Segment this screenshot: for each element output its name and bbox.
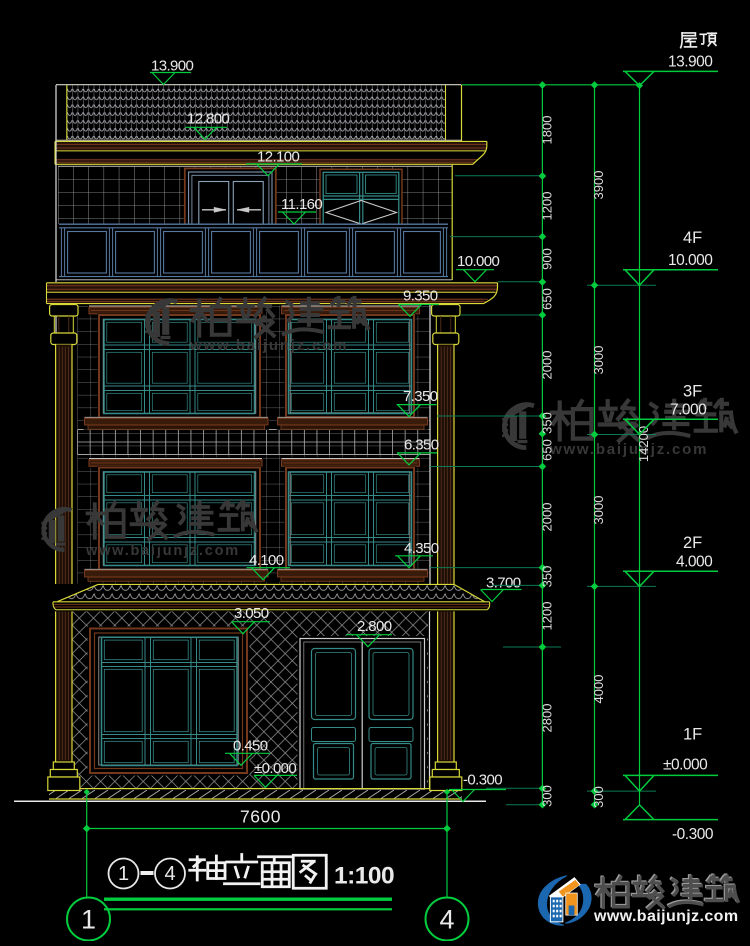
- svg-text:2000: 2000: [540, 351, 555, 380]
- svg-text:300: 300: [540, 785, 555, 807]
- svg-text:3000: 3000: [591, 496, 606, 525]
- svg-text:2.800: 2.800: [357, 618, 392, 635]
- svg-text:900: 900: [540, 248, 555, 270]
- svg-text:www.baijunjz.com: www.baijunjz.com: [593, 908, 739, 925]
- svg-text:300: 300: [591, 786, 606, 808]
- svg-text:±0.000: ±0.000: [254, 760, 296, 777]
- svg-text:4: 4: [439, 905, 454, 935]
- svg-text:12.800: 12.800: [187, 111, 230, 128]
- svg-text:350: 350: [540, 412, 555, 434]
- svg-text:1200: 1200: [540, 192, 555, 221]
- svg-text:6.350: 6.350: [404, 437, 439, 454]
- svg-text:4.000: 4.000: [676, 554, 713, 571]
- svg-text:1: 1: [81, 905, 96, 935]
- svg-text:-0.300: -0.300: [672, 826, 714, 843]
- svg-text:2F: 2F: [683, 534, 702, 552]
- svg-text:3900: 3900: [591, 171, 606, 200]
- svg-text:9.350: 9.350: [403, 288, 438, 305]
- svg-text:4.350: 4.350: [404, 540, 439, 557]
- svg-text:7.350: 7.350: [403, 388, 438, 405]
- svg-text:13.900: 13.900: [668, 54, 713, 71]
- svg-text:www.baijunjz.com: www.baijunjz.com: [85, 543, 240, 559]
- svg-text:650: 650: [540, 439, 555, 461]
- svg-text:4: 4: [164, 863, 175, 885]
- svg-text:12.100: 12.100: [257, 149, 300, 166]
- svg-text:www.baijunjz.com: www.baijunjz.com: [189, 337, 348, 354]
- svg-text:±0.000: ±0.000: [663, 757, 708, 774]
- svg-text:350: 350: [540, 566, 555, 588]
- svg-text:650: 650: [540, 288, 555, 310]
- svg-text:4000: 4000: [591, 675, 606, 704]
- svg-text:-0.300: -0.300: [463, 772, 502, 789]
- svg-text:2000: 2000: [540, 503, 555, 532]
- svg-text:10.000: 10.000: [457, 253, 500, 270]
- svg-text:7600: 7600: [240, 807, 281, 827]
- svg-text:3000: 3000: [591, 346, 606, 375]
- svg-text:2800: 2800: [540, 704, 555, 733]
- svg-text:1: 1: [118, 863, 129, 885]
- svg-text:11.160: 11.160: [281, 196, 322, 213]
- svg-text:7.000: 7.000: [670, 402, 707, 419]
- svg-text:1:100: 1:100: [334, 863, 394, 890]
- svg-text:3F: 3F: [683, 383, 702, 401]
- svg-text:0.450: 0.450: [233, 738, 268, 755]
- svg-text:www.baijunjz.com: www.baijunjz.com: [549, 441, 708, 458]
- svg-text:10.000: 10.000: [668, 252, 713, 269]
- svg-text:4.100: 4.100: [249, 552, 284, 569]
- svg-text:1F: 1F: [683, 726, 702, 744]
- svg-text:1800: 1800: [540, 116, 555, 145]
- svg-text:3.050: 3.050: [234, 605, 269, 622]
- svg-text:1200: 1200: [540, 602, 555, 631]
- svg-text:4F: 4F: [683, 229, 702, 247]
